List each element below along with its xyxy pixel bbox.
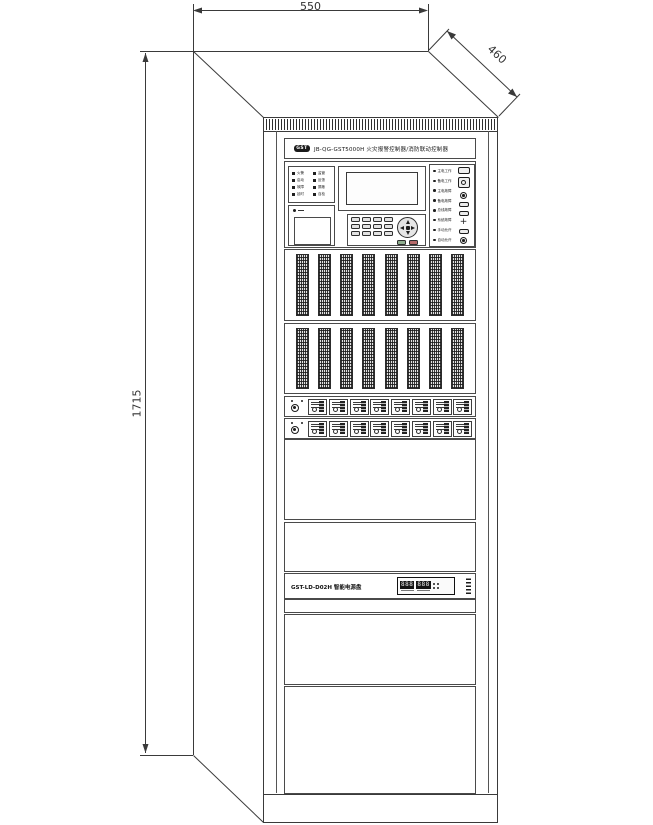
arrow-down-icon xyxy=(406,231,410,235)
buzzer-icon xyxy=(291,426,299,434)
control-module xyxy=(391,421,410,437)
module-led-bar xyxy=(340,401,345,412)
loop-card-strip xyxy=(340,328,353,389)
confirm-key xyxy=(397,240,406,245)
led-indicator xyxy=(313,179,316,182)
control-module xyxy=(453,421,472,437)
control-module xyxy=(391,399,410,415)
loop-card-strip xyxy=(296,254,309,316)
current-display-label xyxy=(417,590,430,591)
status-led-item: 延时 xyxy=(292,192,310,196)
keypad-key xyxy=(373,231,382,236)
status-indicator-box: 火警监管启动反馈故障屏蔽延时自检 xyxy=(288,166,335,203)
status-led-item: 反馈 xyxy=(313,178,331,182)
led-indicator xyxy=(313,172,316,175)
right-led-column: 主电工作备电工作主电故障备电故障总线故障系统故障手动允许自动允许 xyxy=(433,169,457,242)
right-led-item: 手动允许 xyxy=(433,228,457,232)
title-bar: GST JB-QG-GST5000H 火灾报警控制器/消防联动控制器 xyxy=(284,138,476,159)
module-led-bar xyxy=(381,423,386,434)
power-led-grid xyxy=(433,583,441,589)
keypad-panel xyxy=(347,214,426,246)
keypad-key xyxy=(351,231,360,236)
control-module xyxy=(350,421,369,437)
frame-line-left xyxy=(276,131,277,793)
dim-width-label: 550 xyxy=(193,0,428,13)
led-indicator xyxy=(433,219,436,222)
status-led-item: 火警 xyxy=(292,171,310,175)
loop-card-row-2 xyxy=(284,323,476,394)
right-led-item: 自动允许 xyxy=(433,238,457,242)
module-button xyxy=(374,407,379,412)
power-led xyxy=(433,587,435,589)
lcd-bezel xyxy=(338,166,426,211)
module-button xyxy=(333,429,338,434)
mute-button xyxy=(460,192,467,199)
reset-button xyxy=(459,202,469,207)
control-module xyxy=(329,399,348,415)
right-control-box: 主电工作备电工作主电故障备电故障总线故障系统故障手动允许自动允许 + xyxy=(429,164,475,247)
led-label: 故障 xyxy=(297,185,304,189)
blank-panel-4 xyxy=(284,686,476,794)
cabinet-front-face: GST JB-QG-GST5000H 火灾报警控制器/消防联动控制器 火警监管启… xyxy=(263,117,498,823)
keypad-key xyxy=(362,217,371,222)
module-led-bar xyxy=(361,401,366,412)
control-module xyxy=(453,399,472,415)
engineering-drawing: 550 460 1715 GST JB-QG-GST5000H 火灾报警控制器/… xyxy=(0,0,653,825)
module-button xyxy=(312,429,317,434)
led-label: 反馈 xyxy=(318,178,325,182)
right-led-item: 备电故障 xyxy=(433,199,457,203)
led-label: 手动允许 xyxy=(438,228,452,232)
led-label: 启动 xyxy=(297,178,304,182)
power-connector-icon xyxy=(466,578,471,594)
keypad-key xyxy=(384,224,393,229)
loop-card-strip xyxy=(451,254,464,316)
control-module xyxy=(308,421,327,437)
led-indicator xyxy=(313,186,316,189)
right-led-item: 主电工作 xyxy=(433,169,457,173)
module-button xyxy=(457,407,462,412)
buzzer-icon xyxy=(291,404,299,412)
module-button xyxy=(354,407,359,412)
module-led-bar xyxy=(361,423,366,434)
module-led-bar xyxy=(381,401,386,412)
control-module xyxy=(370,399,389,415)
keypad-key xyxy=(351,217,360,222)
status-led-item: 故障 xyxy=(292,185,310,189)
module-button xyxy=(457,429,462,434)
module-led-bar xyxy=(444,401,449,412)
led-indicator xyxy=(313,193,316,196)
dim-height-label: 1715 xyxy=(131,381,144,427)
loop-card-strip xyxy=(362,254,375,316)
module-button xyxy=(416,407,421,412)
loop-card-strip xyxy=(318,254,331,316)
current-display-group: 888 xyxy=(416,581,430,591)
right-button-column: + xyxy=(456,167,471,244)
led-label: 火警 xyxy=(297,171,304,175)
current-display: 888 xyxy=(416,581,430,589)
loop-card-strip xyxy=(385,328,398,389)
keypad-key xyxy=(351,224,360,229)
frame-line-right xyxy=(488,131,489,793)
module-led-bar xyxy=(402,401,407,412)
module-led-bar xyxy=(423,423,428,434)
status-led-item: 屏蔽 xyxy=(313,185,331,189)
module-button xyxy=(416,429,421,434)
module-button xyxy=(437,429,442,434)
led-label: 主电工作 xyxy=(438,169,452,173)
keypad-key xyxy=(362,224,371,229)
led-label: 备电工作 xyxy=(438,179,452,183)
spacer-strip xyxy=(284,599,476,613)
led-label: 系统故障 xyxy=(438,218,452,222)
phone-jack-box xyxy=(288,205,335,246)
equipment-stack: GST JB-QG-GST5000H 火灾报警控制器/消防联动控制器 火警监管启… xyxy=(284,131,476,794)
right-led-item: 系统故障 xyxy=(433,218,457,222)
arrow-right-icon xyxy=(411,226,415,230)
led-indicator xyxy=(433,180,436,183)
led-indicator xyxy=(433,170,436,173)
loop-card-strip xyxy=(385,254,398,316)
product-title: JB-QG-GST5000H 火灾报警控制器/消防联动控制器 xyxy=(314,145,448,153)
plinth-top-line xyxy=(264,794,497,795)
right-led-item: 备电工作 xyxy=(433,179,457,183)
led-indicator xyxy=(292,193,295,196)
loop-card-strip xyxy=(407,328,420,389)
module-led-bar xyxy=(340,423,345,434)
module-led-bar xyxy=(319,401,324,412)
power-led xyxy=(437,583,439,585)
keypad-key xyxy=(384,217,393,222)
module-led-bar xyxy=(423,401,428,412)
loop-card-strip xyxy=(429,254,442,316)
voltage-display-label xyxy=(401,590,414,591)
loop-card-strip xyxy=(340,254,353,316)
start-button xyxy=(459,211,469,216)
led-label: 总线故障 xyxy=(438,208,452,212)
module-led-bar xyxy=(464,401,469,412)
control-module xyxy=(412,399,431,415)
loop-card-strip xyxy=(362,328,375,389)
keypad-key xyxy=(373,217,382,222)
key-switch-top xyxy=(458,167,470,174)
status-led-item: 监管 xyxy=(313,171,331,175)
self-test-button xyxy=(460,237,467,244)
power-meter-display: 888 888 xyxy=(397,577,455,595)
led-label: 自动允许 xyxy=(438,238,452,242)
control-module xyxy=(412,421,431,437)
blank-panel-1 xyxy=(284,439,476,520)
module-button xyxy=(437,407,442,412)
module-button xyxy=(395,429,400,434)
control-module xyxy=(350,399,369,415)
loop-card-row-1 xyxy=(284,249,476,321)
module-led-bar xyxy=(402,423,407,434)
led-label: 屏蔽 xyxy=(318,185,325,189)
keypad-key xyxy=(362,231,371,236)
phone-jack-window xyxy=(294,217,331,245)
phone-icon xyxy=(293,209,304,212)
led-label: 主电故障 xyxy=(438,189,452,193)
power-supply-panel: GST-LD-D02H 智能电源盘 888 888 xyxy=(284,573,476,599)
module-button xyxy=(312,407,317,412)
cancel-key xyxy=(409,240,418,245)
loop-card-strip xyxy=(429,328,442,389)
navigation-cluster xyxy=(397,217,418,245)
module-button xyxy=(395,407,400,412)
module-led-bar xyxy=(464,423,469,434)
control-module xyxy=(308,399,327,415)
voltage-display-group: 888 xyxy=(400,581,414,591)
led-label: 监管 xyxy=(318,171,325,175)
loop-card-strip xyxy=(318,328,331,389)
blank-panel-2 xyxy=(284,522,476,572)
stop-button xyxy=(459,229,469,234)
led-indicator xyxy=(433,199,436,202)
keypad-key xyxy=(384,231,393,236)
lcd-screen xyxy=(346,172,418,205)
right-led-item: 主电故障 xyxy=(433,189,457,193)
voltage-display: 888 xyxy=(400,581,414,589)
grille-hatch-pattern xyxy=(266,119,495,130)
module-led-bar xyxy=(319,423,324,434)
right-led-item: 总线故障 xyxy=(433,208,457,212)
arrow-center-key xyxy=(406,226,410,230)
control-module xyxy=(433,399,452,415)
led-label: 备电故障 xyxy=(438,199,452,203)
keypad-key xyxy=(373,224,382,229)
module-button xyxy=(333,407,338,412)
power-panel-label: GST-LD-D02H 智能电源盘 xyxy=(291,583,361,591)
keypad-grid xyxy=(351,217,393,236)
control-module xyxy=(433,421,452,437)
status-led-item: 启动 xyxy=(292,178,310,182)
key-switch xyxy=(458,177,470,188)
status-led-item: 自检 xyxy=(313,192,331,196)
buzzer-cell xyxy=(288,399,307,415)
ventilation-grille xyxy=(264,118,497,132)
brand-logo: GST xyxy=(294,145,310,152)
led-label: 延时 xyxy=(297,192,304,196)
arrow-up-icon xyxy=(406,220,410,224)
led-indicator xyxy=(292,172,295,175)
control-module-row-2 xyxy=(284,418,476,439)
buzzer-cell xyxy=(288,421,307,437)
led-indicator xyxy=(433,229,436,232)
control-module xyxy=(329,421,348,437)
control-module-row-1 xyxy=(284,396,476,417)
loop-card-strip xyxy=(451,328,464,389)
arrow-pad xyxy=(397,217,418,238)
led-indicator xyxy=(433,239,436,242)
loop-card-strip xyxy=(296,328,309,389)
module-button xyxy=(374,429,379,434)
loop-card-strip xyxy=(407,254,420,316)
power-led xyxy=(433,583,435,585)
control-module xyxy=(370,421,389,437)
status-led-grid: 火警监管启动反馈故障屏蔽延时自检 xyxy=(289,167,334,200)
power-led xyxy=(437,587,439,589)
led-indicator xyxy=(292,179,295,182)
module-led-bar xyxy=(444,423,449,434)
led-indicator xyxy=(433,209,436,212)
led-label: 自检 xyxy=(318,192,325,196)
action-keys xyxy=(397,240,418,245)
main-control-panel: 火警监管启动反馈故障屏蔽延时自检 xyxy=(284,161,476,248)
plus-mark: + xyxy=(460,219,468,225)
led-indicator xyxy=(433,189,436,192)
led-indicator xyxy=(292,186,295,189)
arrow-left-icon xyxy=(400,226,404,230)
blank-panel-3 xyxy=(284,614,476,685)
module-button xyxy=(354,429,359,434)
